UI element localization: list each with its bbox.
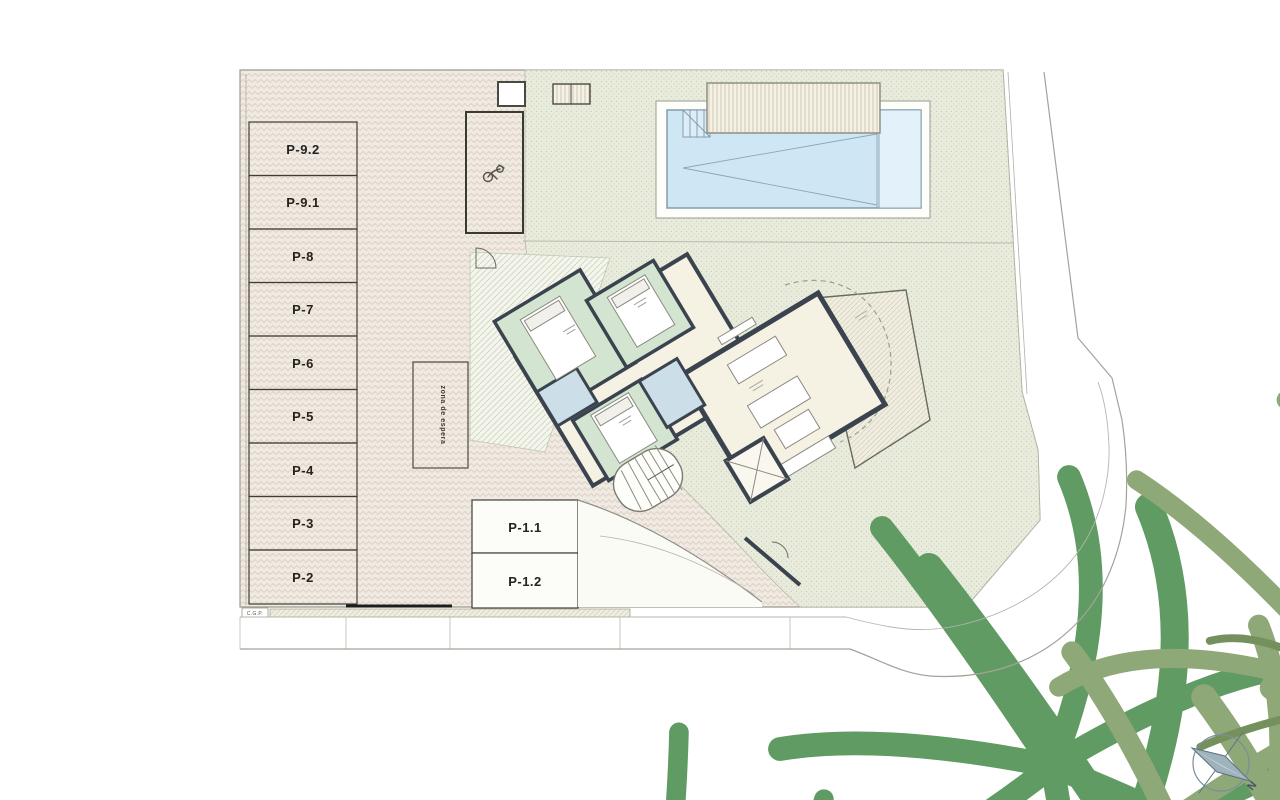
stall-label: P-1.1 [508,520,542,535]
parking-stall: P-1.1 [472,500,578,553]
entry-utility-square [498,82,525,106]
stall-label: P-8 [292,249,314,264]
stall-label: P-9.1 [286,195,320,210]
palm-tree [248,781,1006,800]
storage-pad [466,112,523,233]
stall-label: P-3 [292,516,314,531]
waiting-zone: zona de espera [413,362,468,468]
site-plan-drawing: P-9.2 P-9.1 P-8 P-7 P-6 P-5 P-4 P-3 P-2 … [0,0,1280,800]
utility-box-label: C.G.P. [247,611,263,617]
pool-shallow-lane [879,110,921,208]
stall-label: P-5 [292,409,314,424]
stall-label: P-4 [292,463,314,478]
stall-label: P-1.2 [508,574,542,589]
double-grill-unit [553,84,590,104]
stall-label: P-9.2 [286,142,320,157]
boundary-fence-strip [270,609,630,617]
site-plan-page: P-9.2 P-9.1 P-8 P-7 P-6 P-5 P-4 P-3 P-2 … [0,0,1280,800]
stall-label: P-6 [292,356,314,371]
front-parking: P-1.1 P-1.2 [472,500,578,608]
sidewalk-joints [240,617,790,649]
fern-plant [345,646,985,800]
pool-steps [683,110,710,137]
stall-label: P-2 [292,570,314,585]
swimming-pool [656,83,930,218]
stall-label: P-7 [292,302,314,317]
parking-stall: P-1.2 [472,553,578,608]
pergola-deck [707,83,880,133]
waiting-zone-label: zona de espera [439,386,446,445]
